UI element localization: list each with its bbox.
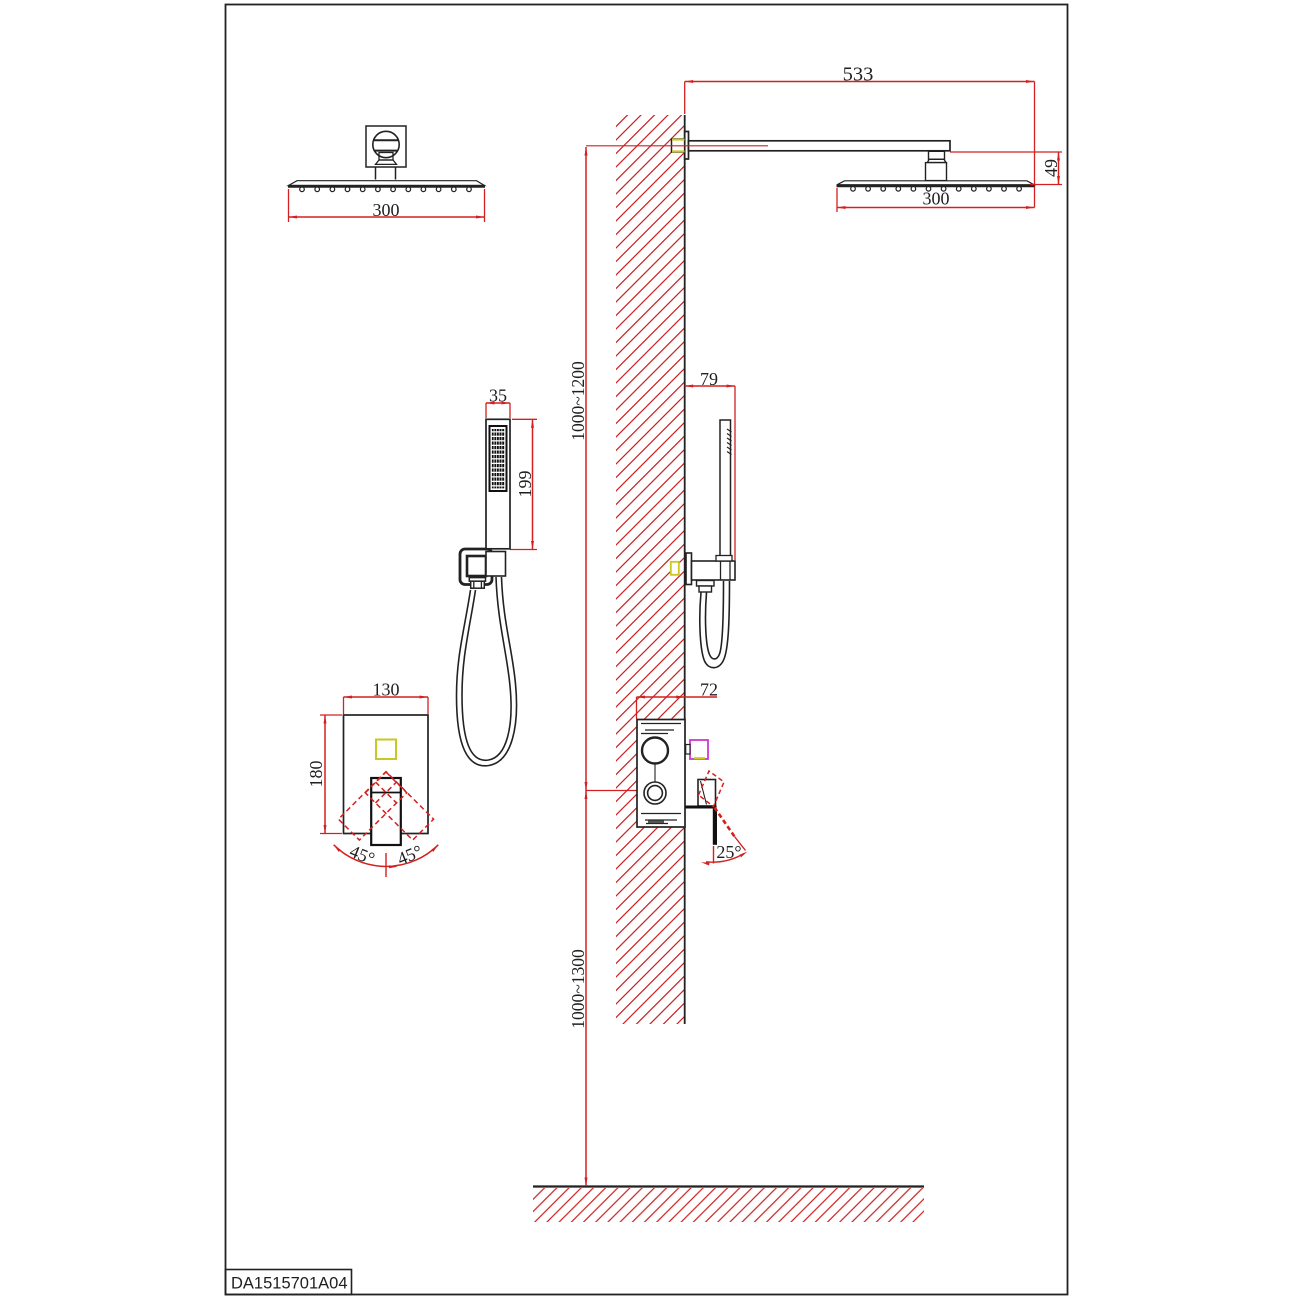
svg-text:300: 300	[923, 189, 950, 209]
svg-text:25°: 25°	[716, 842, 741, 862]
svg-text:35: 35	[489, 386, 507, 406]
svg-text:79: 79	[700, 369, 718, 389]
svg-text:130: 130	[373, 680, 400, 700]
svg-text:49: 49	[1041, 159, 1061, 177]
svg-text:1000~1300: 1000~1300	[568, 949, 588, 1029]
svg-text:72: 72	[700, 680, 718, 700]
svg-text:180: 180	[306, 761, 326, 788]
svg-text:1000~1200: 1000~1200	[568, 361, 588, 441]
svg-text:300: 300	[373, 200, 400, 220]
svg-text:DA1515701A04: DA1515701A04	[231, 1275, 348, 1293]
svg-text:533: 533	[843, 64, 874, 86]
svg-text:199: 199	[515, 471, 535, 498]
